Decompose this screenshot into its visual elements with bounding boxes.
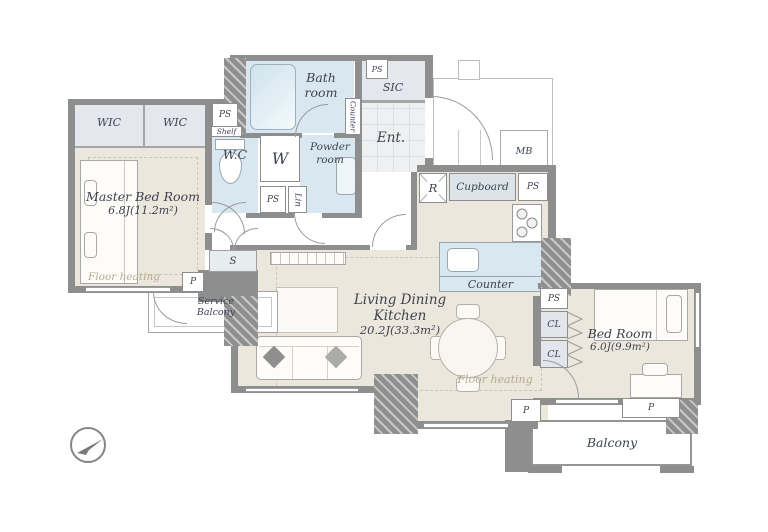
- linen-box: Lin: [288, 186, 307, 213]
- window: [556, 399, 618, 404]
- sofa-seat-line: [327, 347, 328, 379]
- cl-label: CL: [547, 349, 561, 360]
- hatched-wall: [374, 374, 418, 434]
- ps-label: PS: [527, 182, 539, 192]
- window: [695, 293, 700, 347]
- ps-box-top: PS: [366, 59, 388, 79]
- cupboard-label: Cupboard: [456, 181, 509, 193]
- powder-door-arc: [294, 213, 325, 244]
- tv-board: [270, 252, 346, 265]
- wall-thin: [143, 105, 145, 146]
- counter-label: Counter: [349, 101, 358, 132]
- service-balcony-line1: Service: [178, 296, 254, 307]
- bathroom-name-line1: Bath: [294, 70, 348, 85]
- ps-label: PS: [267, 195, 279, 205]
- compass: [70, 427, 106, 463]
- powder-room-label: Powder room: [300, 141, 360, 166]
- master-floor-heating-label: Floor heating: [88, 271, 188, 284]
- wall: [548, 172, 556, 242]
- p-label: P: [523, 406, 529, 416]
- wall: [528, 466, 562, 473]
- wall: [68, 99, 75, 292]
- bedroom-label: Bed Room 6.0J(9.9m²): [564, 326, 676, 354]
- shelf-box: Shelf: [211, 126, 242, 137]
- ps-box-powder: PS: [260, 186, 286, 213]
- ps-label: PS: [548, 294, 560, 304]
- shelf-label: Shelf: [217, 127, 237, 136]
- ps-label: PS: [219, 110, 231, 120]
- master-bed: [80, 160, 138, 284]
- balcony-label: Balcony: [560, 435, 664, 450]
- wall: [246, 213, 294, 218]
- cl-label: CL: [547, 319, 561, 330]
- powder-name-line1: Powder: [300, 141, 360, 154]
- storage-box: S: [209, 250, 257, 272]
- p-label: P: [648, 403, 654, 413]
- kitchen-sink: [447, 248, 479, 272]
- washer-label: W: [272, 149, 288, 168]
- washer-box: W: [260, 135, 300, 182]
- kitchen-counter-label-strip: Counter: [440, 276, 541, 292]
- ldk-floor-heating-label: Floor heating: [446, 373, 544, 386]
- master-bed-pillow: [84, 232, 97, 258]
- ps-box-bedroom: PS: [540, 288, 568, 309]
- ldk-name-line2: Kitchen: [338, 308, 462, 324]
- ldk-door-arc: [372, 214, 406, 247]
- floor-plan: { "rooms": { "master": {"name": "Master …: [0, 0, 768, 532]
- corridor-step: [458, 60, 480, 80]
- service-balcony-line2: Balcony: [178, 307, 254, 318]
- ps-box-kitchen: PS: [518, 173, 548, 201]
- window: [246, 388, 358, 392]
- meter-box-label: MB: [502, 146, 546, 157]
- bedroom-chair: [642, 363, 668, 376]
- master-bedroom-size: 6.8J(11.2m²): [78, 204, 208, 217]
- wall: [411, 172, 417, 250]
- wall: [355, 61, 362, 218]
- master-bed-blanket-line: [124, 161, 125, 283]
- wall: [505, 420, 531, 472]
- entrance-counter-box: Counter: [345, 98, 361, 135]
- storage-label: S: [229, 255, 236, 267]
- window: [424, 423, 508, 428]
- counter-label: Counter: [468, 278, 513, 291]
- ldk-size: 20.2J(33.3m²): [338, 324, 462, 338]
- bedroom-desk: [630, 374, 682, 398]
- refrigerator-box: R: [419, 173, 447, 203]
- p-box-ldk: P: [511, 399, 541, 422]
- sofa-seat-line: [292, 347, 293, 379]
- sic-label: SIC: [362, 81, 424, 94]
- ps-box-wic: PS: [212, 103, 238, 127]
- refrigerator-label: R: [427, 181, 440, 195]
- wc-label: W.C: [212, 147, 258, 162]
- living-rug: [276, 287, 338, 333]
- wic-label: WIC: [78, 116, 140, 129]
- p-box-bedroom: P: [622, 398, 680, 418]
- wall: [425, 55, 433, 98]
- wall-thin: [362, 100, 425, 103]
- ldk-label: Living Dining Kitchen 20.2J(33.3m²): [338, 292, 462, 338]
- wall: [660, 466, 694, 473]
- bedroom-name: Bed Room: [564, 326, 676, 341]
- bathroom-name-line2: room: [294, 85, 348, 100]
- bedroom-size: 6.0J(9.9m²): [564, 341, 676, 354]
- ldk-name-line1: Living Dining: [338, 292, 462, 308]
- wall: [417, 165, 556, 172]
- wall-thin: [75, 146, 205, 148]
- wall: [230, 55, 433, 61]
- stove-burners-icon: [513, 205, 541, 241]
- ps-label: PS: [372, 65, 383, 74]
- entrance-label: Ent.: [362, 130, 420, 146]
- wic-label: WIC: [146, 116, 204, 129]
- master-bedroom-label: Master Bed Room 6.8J(11.2m²): [78, 189, 208, 217]
- powder-name-line2: room: [300, 154, 360, 167]
- bathtub: [250, 64, 296, 130]
- p-label: P: [190, 277, 196, 287]
- wall: [322, 213, 362, 218]
- service-balcony-label: Service Balcony: [178, 296, 254, 319]
- master-bedroom-name: Master Bed Room: [78, 189, 208, 204]
- north-arrow-icon: [72, 429, 108, 465]
- stove: [512, 204, 542, 242]
- bathroom-label: Bath room: [294, 70, 348, 100]
- linen-label: Lin: [293, 193, 303, 207]
- cupboard-box: Cupboard: [449, 173, 516, 201]
